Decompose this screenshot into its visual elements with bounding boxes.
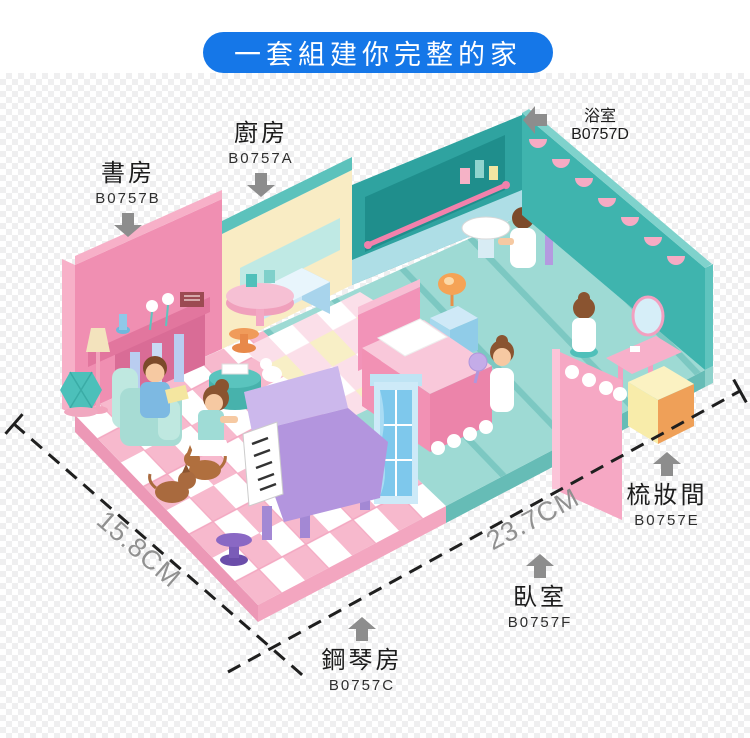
label-bathroom: 浴室 B0757D (522, 102, 642, 144)
label-dressing-room: 梳妝間 B0757E (602, 452, 732, 529)
pianist-figure (198, 410, 224, 444)
bottle (460, 168, 470, 184)
piano-keyboard (243, 422, 283, 506)
bedroom-code: B0757F (475, 614, 605, 631)
mug (246, 274, 257, 287)
bathing-figure (510, 228, 536, 268)
piano-room-name: 鋼琴房 (297, 647, 427, 675)
label-bedroom: 臥室 B0757F (475, 554, 605, 631)
down-arrow-icon (247, 173, 275, 197)
up-arrow-icon (348, 617, 376, 641)
towel-figure (490, 368, 514, 412)
dressing-room-name: 梳妝間 (602, 482, 732, 510)
up-arrow-icon (526, 554, 554, 578)
seated-figure (572, 318, 596, 352)
study-name: 書房 (63, 160, 193, 188)
product-infographic: 一套組建你完整的家 (0, 0, 750, 738)
piano-room-code: B0757C (297, 677, 427, 694)
hand-mirror (469, 353, 487, 371)
kitchen-code: B0757A (196, 150, 326, 167)
vanity-mirror (633, 297, 663, 335)
reading-figure (140, 382, 170, 418)
bathroom-code: B0757D (558, 126, 642, 144)
study-code: B0757B (63, 190, 193, 207)
dressing-room-code: B0757E (602, 512, 732, 529)
left-arrow-icon (522, 106, 548, 134)
piano-stool (216, 533, 252, 547)
mug (264, 270, 275, 283)
label-study: 書房 B0757B (63, 160, 193, 237)
dining-table (226, 283, 294, 309)
kitchen-name: 廚房 (196, 120, 326, 148)
up-arrow-icon (653, 452, 681, 476)
label-piano-room: 鋼琴房 B0757C (297, 617, 427, 694)
bottle (489, 166, 498, 180)
down-arrow-icon (114, 213, 142, 237)
sink (462, 217, 510, 239)
bottle (475, 160, 484, 178)
bathroom-name: 浴室 (558, 102, 642, 126)
label-kitchen: 廚房 B0757A (196, 120, 326, 197)
bedroom-name: 臥室 (475, 584, 605, 612)
